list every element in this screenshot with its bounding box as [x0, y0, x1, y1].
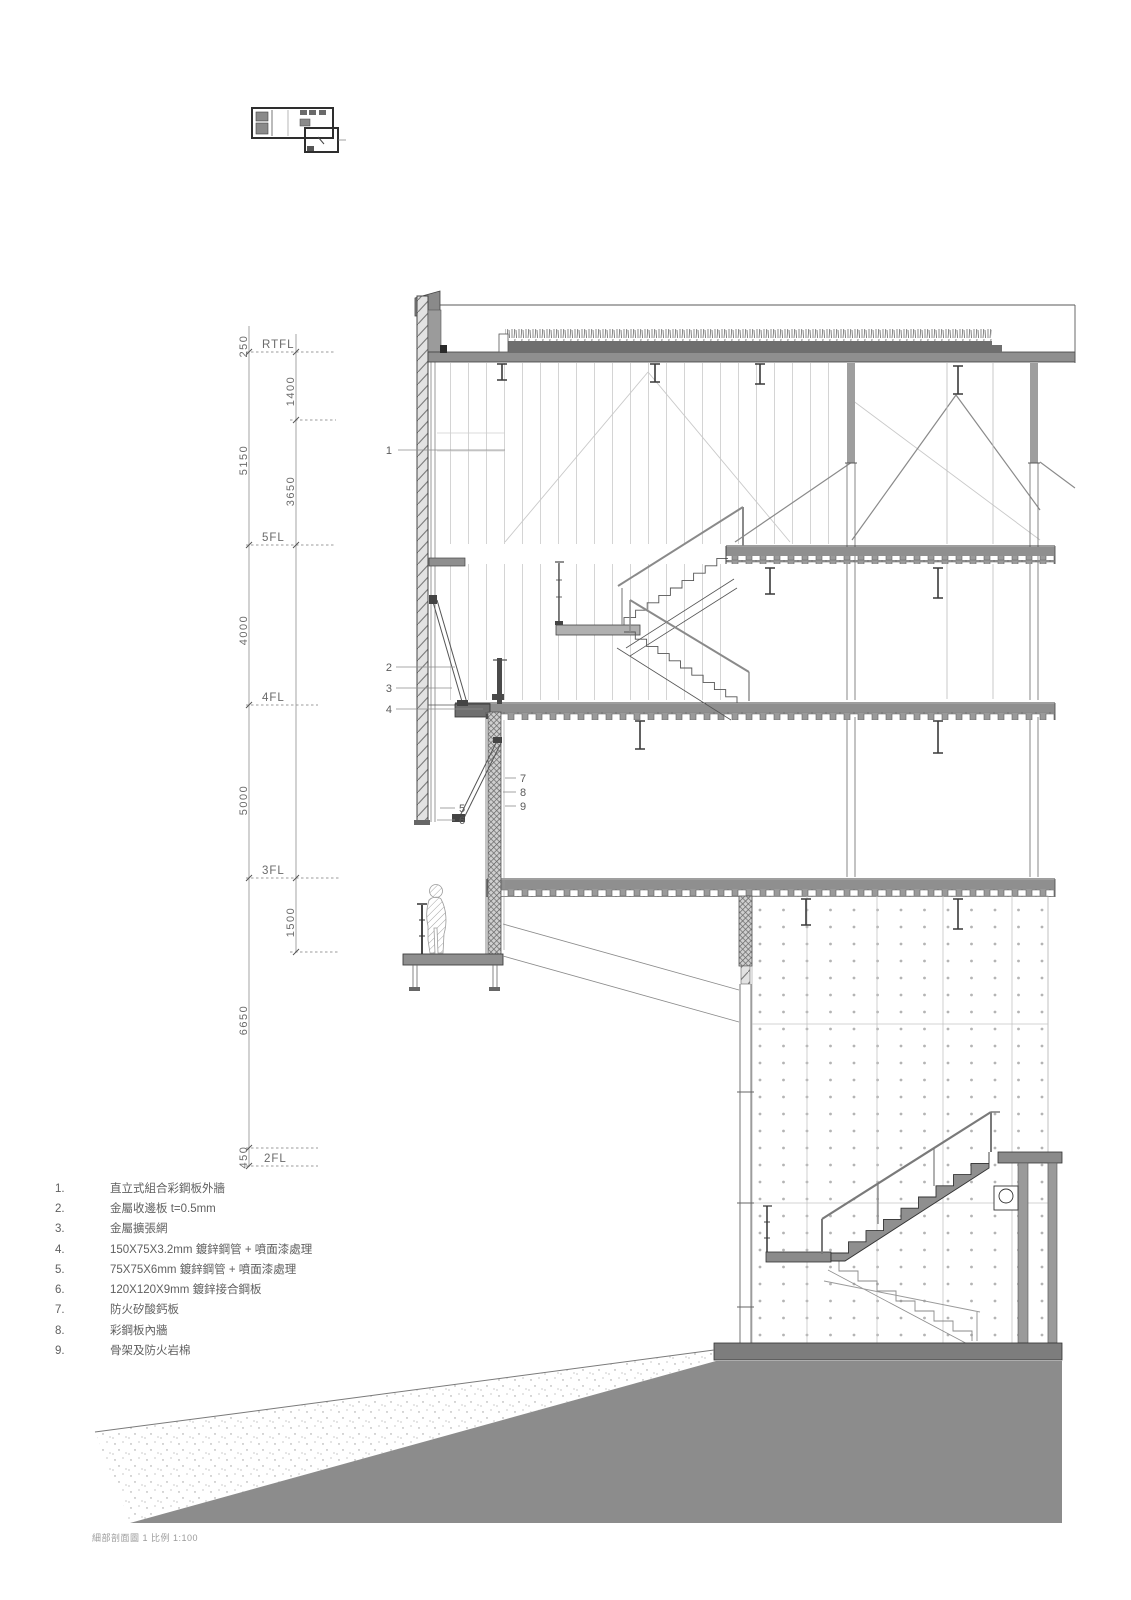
column-2fl	[1018, 1163, 1028, 1343]
stairwell-wall	[737, 896, 754, 1343]
green-roof-grass	[505, 329, 992, 342]
ibeam-icon	[933, 721, 943, 753]
legend-text-9: 骨架及防火岩棉	[110, 1343, 191, 1357]
level-label-5fl: 5FL	[262, 532, 285, 544]
legend-text-3: 金屬擴張網	[110, 1221, 168, 1235]
dim-1500: 1500	[285, 907, 297, 937]
legend-text-7: 防火矽酸鈣板	[110, 1302, 179, 1316]
roof-slab	[428, 352, 1075, 362]
legend-text-4: 150X75X3.2mm 鍍鋅鋼管 + 噴面漆處理	[110, 1242, 313, 1256]
dim-4000: 4000	[238, 615, 250, 645]
cladding-lines-upper	[437, 363, 833, 544]
dim-5000: 5000	[238, 785, 250, 815]
roof-drain	[440, 345, 447, 353]
ibeam-icon	[933, 568, 943, 598]
wall-post	[497, 658, 502, 704]
edge-column	[1048, 1163, 1057, 1343]
slab-2fl	[998, 1152, 1062, 1163]
callout-9: 9	[520, 801, 526, 813]
legend-num-9: 9.	[55, 1345, 65, 1357]
person-figure	[427, 885, 446, 954]
concrete-wall	[752, 896, 1048, 1343]
section-drawing-svg: RTFL 5FL 4FL 3FL 2FL 250 5150 4000 5000 …	[0, 0, 1131, 1600]
green-roof-soil	[505, 341, 992, 352]
dim-450: 450	[238, 1146, 250, 1169]
dim-3650: 3650	[285, 476, 297, 506]
roof	[428, 305, 1075, 363]
ibeam-icon	[635, 721, 645, 749]
ibeam-icon	[765, 568, 775, 594]
ibeam-icon	[953, 366, 963, 394]
ramp-line	[503, 956, 739, 1022]
legend-num-6: 6.	[55, 1284, 65, 1296]
legend-text-1: 直立式組合彩鋼板外牆	[110, 1181, 225, 1195]
dim-5150: 5150	[238, 445, 250, 475]
dim-250: 250	[238, 335, 250, 358]
columns	[845, 363, 1040, 877]
legend-num-1: 1.	[55, 1183, 65, 1195]
legend-text-8: 彩鋼板內牆	[110, 1323, 168, 1337]
callout-6: 6	[459, 815, 465, 827]
callout-1: 1	[386, 445, 392, 457]
level-label-2fl: 2FL	[264, 1153, 287, 1165]
dim-ticks	[246, 349, 299, 1169]
callout-3: 3	[386, 683, 392, 695]
legend-text-6: 120X120X9mm 鍍鋅接合鋼板	[110, 1282, 262, 1296]
callout-4: 4	[386, 704, 392, 716]
callout-8: 8	[520, 787, 526, 799]
floor-5fl	[429, 546, 1055, 566]
level-label-4fl: 4FL	[262, 692, 285, 704]
level-label-rtfl: RTFL	[262, 339, 295, 351]
dimension-column: RTFL 5FL 4FL 3FL 2FL 250 5150 4000 5000 …	[238, 326, 340, 1169]
stair-landing	[556, 625, 640, 635]
dim-6650: 6650	[238, 1005, 250, 1035]
legend-num-8: 8.	[55, 1325, 65, 1337]
callout-7: 7	[520, 773, 526, 785]
level-dashes	[246, 352, 340, 1166]
dim-1400: 1400	[285, 376, 297, 406]
column	[847, 363, 855, 463]
terrain	[95, 1343, 1062, 1523]
pipe-section-icon	[999, 1189, 1013, 1203]
legend-num-3: 3.	[55, 1223, 65, 1235]
ramp-line	[503, 924, 739, 990]
key-plan	[252, 108, 346, 152]
callout-2: 2	[386, 662, 392, 674]
legend: 1. 直立式組合彩鋼板外牆 2. 金屬收邊板 t=0.5mm 3. 金屬擴張網 …	[55, 1181, 313, 1357]
interior-wall	[486, 658, 507, 954]
legend-text-2: 金屬收邊板 t=0.5mm	[110, 1201, 216, 1215]
roof-upstand	[499, 334, 508, 352]
floor-3fl	[487, 879, 1055, 897]
level-label-3fl: 3FL	[262, 865, 285, 877]
legend-num-5: 5.	[55, 1264, 65, 1276]
column	[1030, 363, 1038, 463]
legend-text-5: 75X75X6mm 鍍鋅鋼管 + 噴面漆處理	[110, 1262, 297, 1276]
legend-num-4: 4.	[55, 1244, 65, 1256]
drawing-sheet: RTFL 5FL 4FL 3FL 2FL 250 5150 4000 5000 …	[0, 0, 1131, 1600]
ground-slab	[714, 1343, 1062, 1360]
callout-5: 5	[459, 803, 465, 815]
legend-num-7: 7.	[55, 1304, 65, 1316]
legend-num-2: 2.	[55, 1203, 65, 1215]
wall-girt-5fl	[429, 558, 465, 566]
drawing-caption: 細部剖面圖 1 比例 1:100	[92, 1532, 198, 1543]
